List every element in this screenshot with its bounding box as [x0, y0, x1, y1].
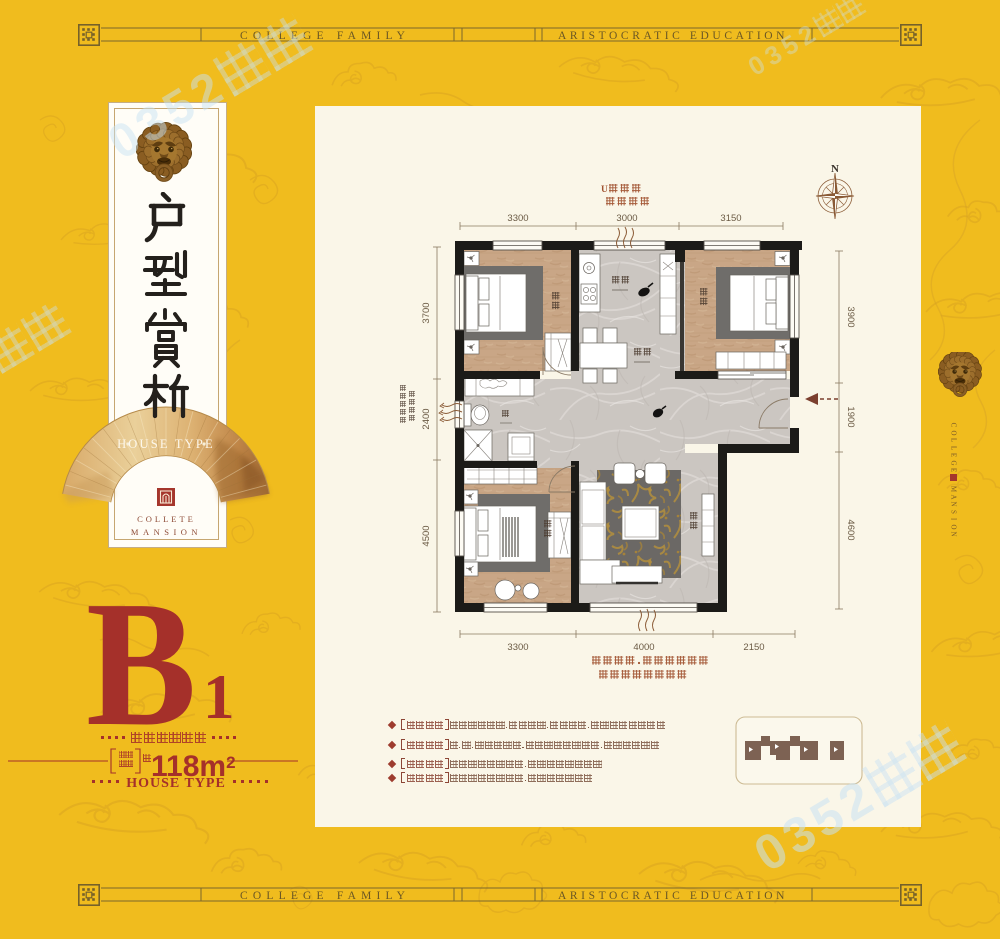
svg-text:4500: 4500: [421, 525, 432, 546]
svg-text:3900: 3900: [845, 306, 856, 327]
svg-text:3300: 3300: [507, 642, 528, 653]
svg-text:N: N: [831, 163, 839, 175]
svg-text:3700: 3700: [421, 302, 432, 323]
svg-text:U: U: [601, 185, 608, 195]
svg-text:4000: 4000: [633, 642, 654, 653]
svg-text:3150: 3150: [720, 213, 741, 224]
svg-text:3000: 3000: [616, 213, 637, 224]
svg-text:2150: 2150: [743, 642, 764, 653]
svg-text:3300: 3300: [507, 213, 528, 224]
svg-text:HOUSE TYPE: HOUSE TYPE: [117, 437, 215, 451]
svg-text:1900: 1900: [845, 406, 856, 427]
svg-text:2400: 2400: [421, 408, 432, 429]
svg-text:4600: 4600: [845, 519, 856, 540]
